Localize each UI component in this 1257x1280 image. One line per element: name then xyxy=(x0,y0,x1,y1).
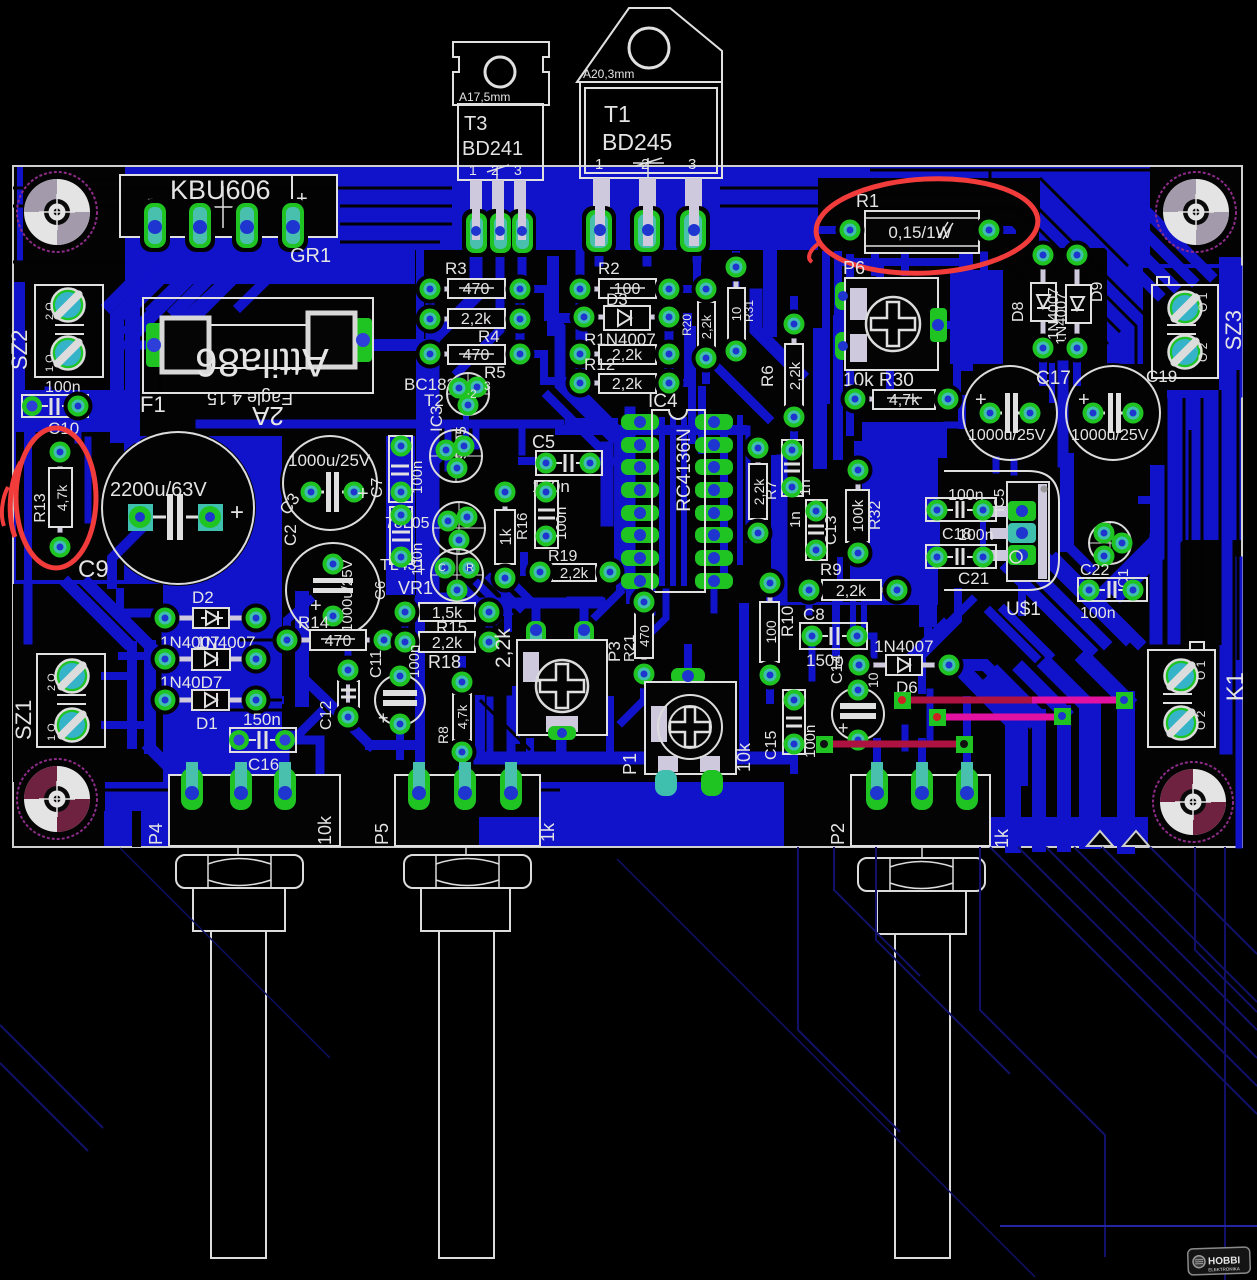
svg-text:R12: R12 xyxy=(584,355,615,374)
svg-text:C2: C2 xyxy=(281,524,300,546)
svg-text:A17,5mm: A17,5mm xyxy=(459,90,510,104)
svg-text:2,2k: 2,2k xyxy=(699,314,714,339)
svg-text:C8: C8 xyxy=(803,605,825,624)
svg-text:R6: R6 xyxy=(758,365,777,387)
svg-text:T3: T3 xyxy=(464,113,487,135)
svg-text:C19: C19 xyxy=(1146,367,1177,386)
svg-text:10k: 10k xyxy=(315,815,335,845)
svg-text:1: 1 xyxy=(469,162,477,178)
svg-text:1k: 1k xyxy=(498,528,515,546)
svg-text:150n: 150n xyxy=(243,710,281,729)
svg-text:470: 470 xyxy=(637,625,652,647)
svg-text:D8: D8 xyxy=(1010,301,1027,322)
svg-text:R3: R3 xyxy=(445,259,467,278)
svg-text:SZ2: SZ2 xyxy=(7,330,32,370)
svg-text:2,2k: 2,2k xyxy=(612,347,643,364)
svg-text:+: + xyxy=(357,483,369,505)
svg-text:1N4007: 1N4007 xyxy=(1045,287,1062,340)
svg-text:A20,3mm: A20,3mm xyxy=(583,67,634,81)
svg-text:R4: R4 xyxy=(478,327,500,346)
svg-text:100: 100 xyxy=(763,620,779,644)
svg-text:C11: C11 xyxy=(368,650,385,678)
svg-text:IC3: IC3 xyxy=(427,406,446,432)
svg-text:1: 1 xyxy=(595,156,603,173)
svg-text:2,2k: 2,2k xyxy=(432,635,463,652)
svg-text:P5: P5 xyxy=(372,823,392,845)
svg-text:SZ1: SZ1 xyxy=(11,700,36,740)
svg-text:VR1: VR1 xyxy=(398,578,433,598)
svg-text:D9: D9 xyxy=(1089,281,1106,302)
svg-text:470: 470 xyxy=(463,281,490,298)
svg-text:1N4007: 1N4007 xyxy=(874,637,934,656)
svg-text:2 O: 2 O xyxy=(46,673,58,691)
svg-text:U$1: U$1 xyxy=(1006,599,1041,620)
svg-text:2,2k: 2,2k xyxy=(461,311,492,328)
svg-text:470: 470 xyxy=(463,347,490,364)
svg-text:D2: D2 xyxy=(192,588,214,607)
svg-text:R: R xyxy=(466,562,474,574)
svg-text:P2: P2 xyxy=(828,823,848,845)
svg-text:K1: K1 xyxy=(1222,672,1249,701)
svg-text:C13: C13 xyxy=(823,516,840,545)
svg-text:C5: C5 xyxy=(532,432,555,452)
svg-text:C15: C15 xyxy=(763,731,780,760)
svg-text:C7: C7 xyxy=(369,477,386,498)
svg-text:2200u/63V: 2200u/63V xyxy=(110,479,207,501)
svg-text:IC4: IC4 xyxy=(648,391,678,412)
svg-text:C: C xyxy=(438,562,446,574)
svg-text:3: 3 xyxy=(484,379,491,393)
svg-text:100n: 100n xyxy=(409,543,426,576)
svg-text:1 O: 1 O xyxy=(44,354,56,372)
svg-text:BD241: BD241 xyxy=(462,138,523,160)
svg-text:T1: T1 xyxy=(604,101,631,127)
svg-text:F1: F1 xyxy=(140,392,166,417)
svg-text:470: 470 xyxy=(325,633,352,650)
svg-text:C14: C14 xyxy=(829,655,846,684)
svg-text:C12: C12 xyxy=(318,701,335,730)
svg-text:R19: R19 xyxy=(548,548,577,565)
svg-text:RC4136N: RC4136N xyxy=(674,428,695,511)
svg-text:2,2k: 2,2k xyxy=(560,565,589,582)
svg-text:+: + xyxy=(378,708,389,728)
svg-text:C6: C6 xyxy=(372,581,389,600)
svg-text:1k: 1k xyxy=(992,828,1012,848)
svg-text:C16: C16 xyxy=(248,755,279,774)
svg-text:+: + xyxy=(838,718,849,738)
svg-text:1k: 1k xyxy=(538,822,558,842)
svg-text:O 1: O 1 xyxy=(1196,292,1210,312)
svg-text:1000u/25V: 1000u/25V xyxy=(1071,427,1149,444)
svg-text:C9: C9 xyxy=(78,556,109,583)
svg-text:2,2k: 2,2k xyxy=(787,361,804,390)
svg-text:100n: 100n xyxy=(1080,605,1116,622)
svg-text:2A: 2A xyxy=(251,401,283,431)
svg-text:3: 3 xyxy=(688,156,696,173)
svg-text:IC5: IC5 xyxy=(991,489,1008,512)
svg-text:3: 3 xyxy=(514,162,522,178)
svg-text:100n: 100n xyxy=(409,461,426,494)
svg-text:R9: R9 xyxy=(820,560,842,579)
svg-text:1 O: 1 O xyxy=(46,723,58,741)
svg-text:P4: P4 xyxy=(146,823,166,845)
svg-text:R31: R31 xyxy=(742,300,756,322)
svg-text:BD245: BD245 xyxy=(602,129,672,155)
svg-text:R10: R10 xyxy=(778,606,797,637)
svg-text:D1: D1 xyxy=(196,714,218,733)
svg-text:1000u/25V: 1000u/25V xyxy=(968,427,1046,444)
svg-text:R16: R16 xyxy=(514,512,531,540)
svg-text:2: 2 xyxy=(470,387,477,401)
svg-text:2,2k: 2,2k xyxy=(836,583,867,600)
svg-text:R32: R32 xyxy=(867,501,884,530)
svg-text:2,2k: 2,2k xyxy=(612,376,643,393)
svg-text:Attila86: Attila86 xyxy=(195,340,328,384)
svg-text:P1: P1 xyxy=(620,753,640,775)
svg-text:4,7k: 4,7k xyxy=(889,392,920,409)
svg-text:GR1: GR1 xyxy=(290,245,331,267)
svg-text:O 2: O 2 xyxy=(1194,710,1208,730)
svg-text:+: + xyxy=(230,499,244,526)
svg-text:SZ3: SZ3 xyxy=(1221,310,1246,350)
svg-text:O 1: O 1 xyxy=(1194,660,1208,680)
svg-text:4,7k: 4,7k xyxy=(54,484,70,511)
svg-text:R2: R2 xyxy=(598,259,620,278)
svg-text:10k: 10k xyxy=(734,742,754,772)
svg-text:1000u/25V: 1000u/25V xyxy=(288,451,371,470)
svg-text:R20: R20 xyxy=(680,314,694,336)
svg-text:100n: 100n xyxy=(958,527,994,544)
svg-text:P6: P6 xyxy=(843,258,865,278)
svg-text:R7: R7 xyxy=(763,481,780,500)
svg-text:C22: C22 xyxy=(1080,562,1109,579)
svg-text:R13: R13 xyxy=(32,493,49,522)
svg-text:2,2k: 2,2k xyxy=(492,628,515,668)
svg-text:R8: R8 xyxy=(435,726,451,744)
svg-text:2 O: 2 O xyxy=(44,302,56,320)
svg-text:1n: 1n xyxy=(797,479,814,496)
svg-text:100k: 100k xyxy=(850,499,867,532)
svg-text:100n: 100n xyxy=(553,507,570,540)
svg-text:1n: 1n xyxy=(787,511,804,528)
svg-text:O 2: O 2 xyxy=(1196,342,1210,362)
svg-text:C21: C21 xyxy=(958,569,989,588)
svg-text:4,7k: 4,7k xyxy=(455,704,470,729)
